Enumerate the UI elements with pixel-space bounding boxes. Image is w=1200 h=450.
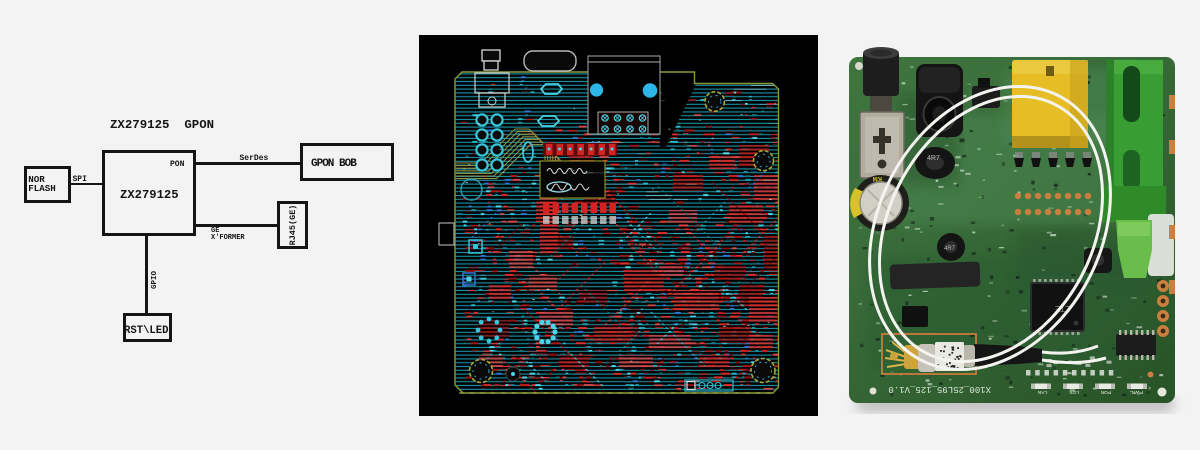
svg-text:X100_25L95_125_V1.0: X100_25L95_125_V1.0 (888, 384, 991, 394)
svg-text:4R7: 4R7 (927, 155, 940, 162)
svg-text:PWR: PWR (1131, 389, 1143, 395)
svg-text:LAN: LAN (1037, 389, 1047, 395)
svg-text:KM: KM (873, 175, 882, 181)
svg-text:4R7: 4R7 (944, 246, 956, 252)
svg-text:LOS: LOS (1069, 389, 1079, 395)
svg-text:PON: PON (1100, 389, 1111, 395)
